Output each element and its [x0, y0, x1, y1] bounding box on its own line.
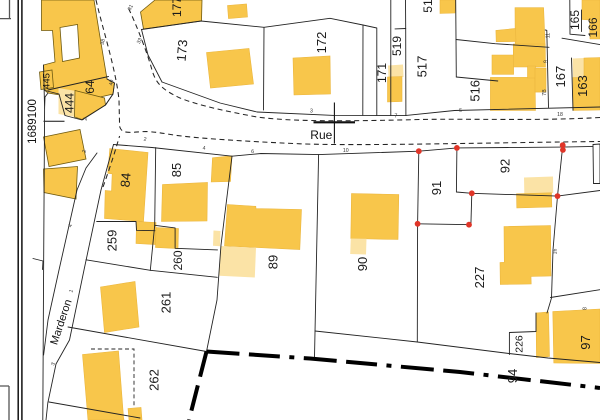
svg-text:171: 171 — [375, 63, 389, 83]
svg-text:261: 261 — [159, 292, 174, 314]
svg-text:6: 6 — [459, 108, 462, 114]
svg-text:165: 165 — [568, 10, 582, 30]
svg-text:9: 9 — [544, 60, 550, 63]
svg-text:3: 3 — [310, 108, 313, 114]
svg-text:51: 51 — [421, 0, 435, 13]
svg-text:97: 97 — [578, 335, 593, 349]
svg-text:167: 167 — [553, 66, 568, 88]
svg-text:91: 91 — [429, 181, 444, 195]
svg-text:94: 94 — [505, 369, 520, 383]
svg-text:516: 516 — [468, 80, 483, 102]
svg-text:445: 445 — [42, 73, 53, 89]
svg-text:18: 18 — [557, 112, 563, 118]
svg-text:Rue: Rue — [310, 128, 332, 142]
svg-text:163: 163 — [575, 75, 590, 97]
svg-text:8: 8 — [583, 307, 589, 310]
svg-text:90: 90 — [355, 257, 370, 271]
svg-text:262: 262 — [147, 369, 162, 391]
svg-text:10: 10 — [343, 148, 349, 154]
svg-text:166: 166 — [586, 17, 600, 37]
svg-text:11: 11 — [546, 33, 552, 38]
svg-text:517: 517 — [415, 56, 430, 78]
svg-text:177: 177 — [170, 0, 184, 17]
svg-text:172: 172 — [314, 32, 329, 54]
svg-text:444: 444 — [62, 93, 76, 113]
svg-text:173: 173 — [174, 39, 191, 62]
svg-text:1689100: 1689100 — [27, 99, 39, 144]
svg-text:85: 85 — [169, 163, 184, 177]
svg-text:64: 64 — [83, 80, 97, 94]
svg-text:227: 227 — [472, 267, 487, 289]
svg-text:260: 260 — [171, 250, 185, 270]
svg-text:89: 89 — [265, 255, 280, 269]
svg-text:84: 84 — [117, 172, 133, 188]
svg-text:7: 7 — [395, 114, 398, 120]
svg-text:259: 259 — [104, 230, 119, 252]
svg-text:519: 519 — [390, 36, 404, 56]
svg-text:16: 16 — [553, 249, 559, 255]
svg-text:226: 226 — [514, 335, 526, 353]
svg-text:7B: 7B — [542, 89, 548, 96]
svg-text:92: 92 — [498, 159, 513, 173]
svg-text:6: 6 — [251, 149, 254, 155]
